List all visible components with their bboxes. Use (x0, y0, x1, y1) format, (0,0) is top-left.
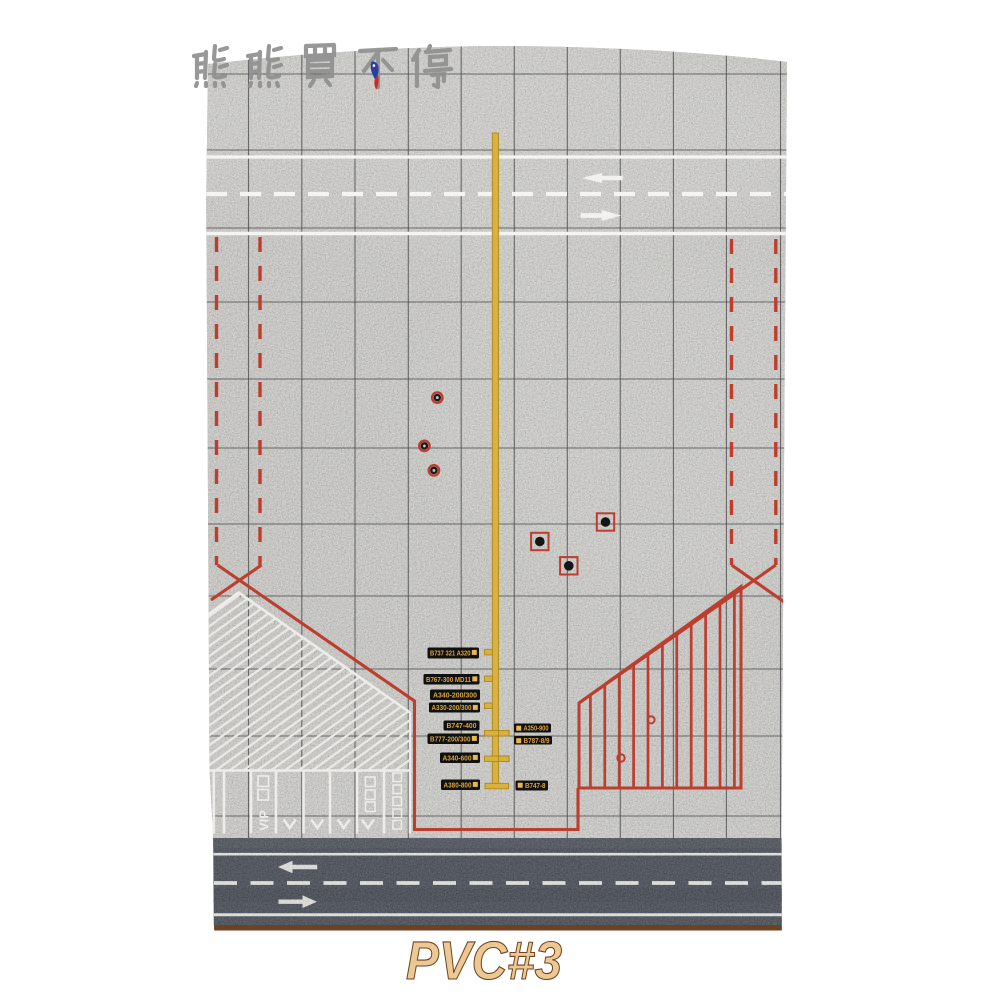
svg-text:B777-200/300: B777-200/300 (430, 734, 471, 743)
svg-text:A340-200/300: A340-200/300 (433, 690, 477, 699)
svg-text:B787-8/9: B787-8/9 (524, 736, 550, 745)
svg-text:B747-8: B747-8 (525, 781, 546, 790)
svg-text:A380-800: A380-800 (444, 780, 472, 789)
svg-text:B737 321 A320: B737 321 A320 (430, 649, 471, 658)
svg-text:A340-600: A340-600 (443, 753, 472, 762)
svg-text:VIP: VIP (257, 810, 272, 831)
svg-text:PVC#3: PVC#3 (406, 931, 562, 991)
svg-text:B767-300 MD11: B767-300 MD11 (426, 675, 472, 684)
svg-text:A350-900: A350-900 (524, 724, 549, 733)
svg-text:B747-400: B747-400 (447, 721, 477, 730)
svg-text:A330-200/300: A330-200/300 (432, 703, 472, 712)
